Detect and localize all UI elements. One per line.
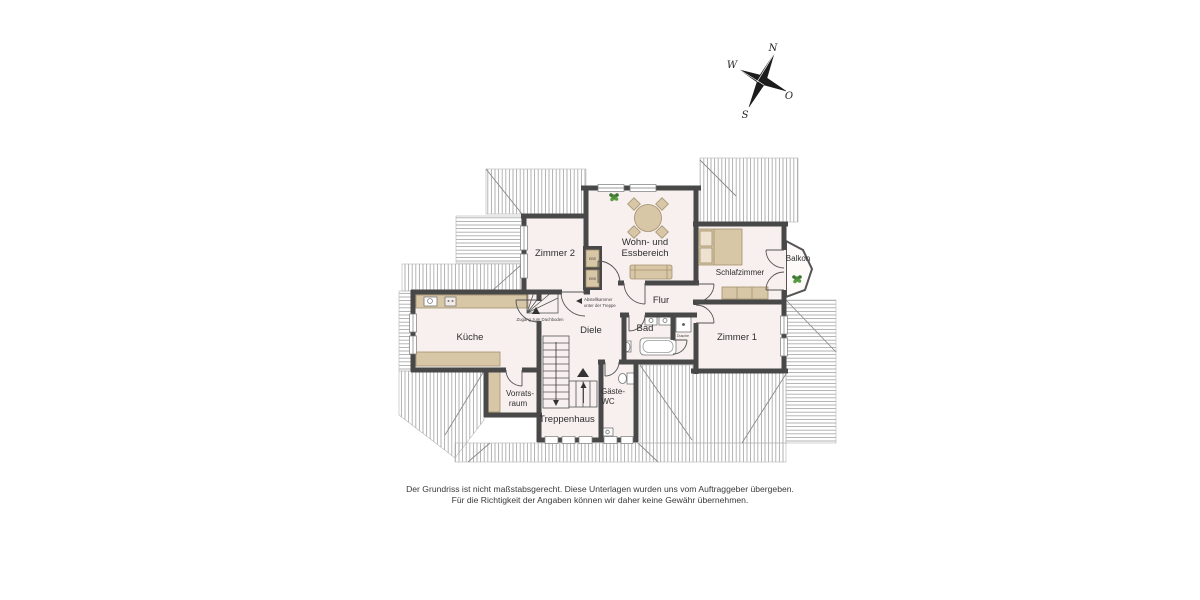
kitchen-counter-bottom xyxy=(416,352,500,366)
label-vorrat-line2: raum xyxy=(509,399,528,408)
sideboard xyxy=(722,287,768,299)
balcony-floor xyxy=(786,241,812,297)
disclaimer: Der Grundriss ist nicht maßstabsgerecht.… xyxy=(406,484,794,505)
disclaimer-line2: Für die Richtigkeit der Angaben können w… xyxy=(452,495,749,505)
compass-w: W xyxy=(727,60,738,71)
disclaimer-line1: Der Grundriss ist nicht maßstabsgerecht.… xyxy=(406,484,794,494)
label-vorrat-line1: Vorrats- xyxy=(506,389,534,398)
label-wc-line1: Gäste- xyxy=(601,387,625,396)
label-balkon: Balkon xyxy=(786,254,810,263)
ebs-cabinet-label-2: EBS xyxy=(589,277,597,281)
label-zimmer2: Zimmer 2 xyxy=(535,248,575,259)
label-schlafzimmer: Schlafzimmer xyxy=(716,268,765,277)
ebs-cabinet-label-1: EBS xyxy=(589,257,597,261)
bathtub xyxy=(640,338,676,355)
zugang-dachboden-label: Zugang zum Dachboden xyxy=(516,317,564,322)
bed xyxy=(698,229,742,265)
compass-s: S xyxy=(742,110,749,121)
abstellkammer-line1: Abstellkammer xyxy=(584,297,613,302)
abstellkammer-line2: unter der Treppe xyxy=(584,303,616,308)
compass-rose: N W O S xyxy=(727,43,793,121)
label-flur: Flur xyxy=(653,295,669,306)
label-kueche: Küche xyxy=(457,332,484,343)
kitchen-stove xyxy=(445,297,456,306)
wc-sink xyxy=(602,428,613,436)
label-treppenhaus: Treppenhaus xyxy=(539,414,595,425)
pantry-shelf xyxy=(487,372,500,412)
label-zimmer1: Zimmer 1 xyxy=(717,332,757,343)
label-wohn-line1: Wohn- und xyxy=(622,237,668,248)
compass-star xyxy=(740,54,786,107)
label-diele: Diele xyxy=(580,325,602,336)
floorplan-page: N W O S xyxy=(0,0,1200,600)
label-bad: Bad xyxy=(637,323,654,334)
sofa xyxy=(630,265,672,279)
shower-tray xyxy=(676,317,691,332)
floorplan-drawing: N W O S xyxy=(0,0,1200,600)
label-dusche: Dusche xyxy=(677,334,689,338)
compass-n: N xyxy=(768,43,779,54)
label-wc-line2: WC xyxy=(601,397,615,406)
compass-o: O xyxy=(785,91,793,102)
dining-table xyxy=(635,205,662,232)
label-wohn-line2: Essbereich xyxy=(622,248,669,259)
